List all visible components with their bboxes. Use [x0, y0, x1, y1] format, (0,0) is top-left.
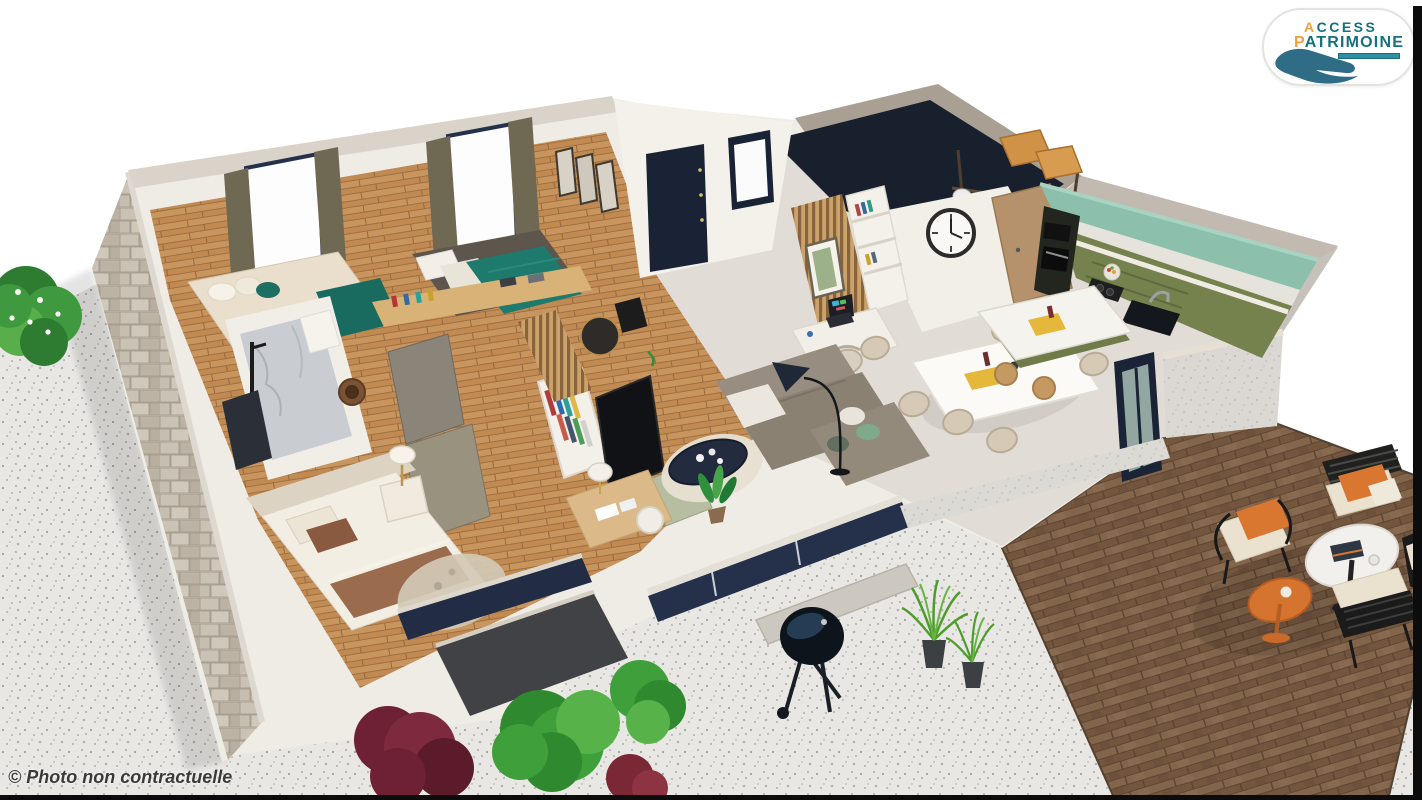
stool: [1033, 377, 1055, 399]
logo-tagline-bar: [1338, 53, 1400, 59]
floorplan-render-page: ACCESS PATRIMOINE © Photo non contractue…: [0, 0, 1422, 800]
floorplan-3d-scene: [0, 0, 1422, 800]
bottom-edge-strip: [0, 795, 1422, 800]
photo-disclaimer-caption: © Photo non contractuelle: [8, 767, 232, 788]
stool: [995, 363, 1017, 385]
front-door-navy: [646, 144, 708, 272]
logo-text: ACCESS PATRIMOINE: [1294, 20, 1406, 59]
right-edge-strip: [1413, 6, 1422, 800]
logo-word-patrimoine: PATRIMOINE: [1294, 35, 1406, 52]
wall-clock: [928, 210, 974, 256]
logo-word-access: ACCESS: [1294, 20, 1406, 35]
access-patrimoine-logo: ACCESS PATRIMOINE: [1262, 8, 1416, 86]
